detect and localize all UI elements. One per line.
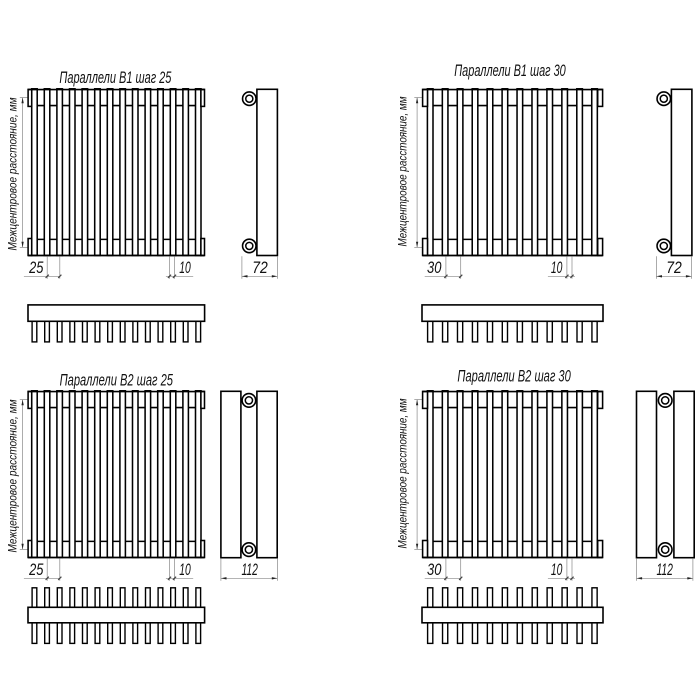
svg-text:25: 25 xyxy=(28,258,43,277)
svg-text:Параллели В1 шаг 30: Параллели В1 шаг 30 xyxy=(454,61,566,80)
svg-text:112: 112 xyxy=(241,560,258,579)
svg-text:10: 10 xyxy=(551,258,563,277)
svg-text:25: 25 xyxy=(28,560,43,579)
svg-text:10: 10 xyxy=(179,258,191,277)
svg-text:72: 72 xyxy=(252,258,268,277)
svg-text:Межцентровое расстояние, мм: Межцентровое расстояние, мм xyxy=(8,97,20,250)
svg-text:30: 30 xyxy=(427,258,442,277)
svg-text:10: 10 xyxy=(179,560,191,579)
svg-text:Параллели В2 шаг 25: Параллели В2 шаг 25 xyxy=(60,371,174,390)
svg-text:Межцентровое расстояние, мм: Межцентровое расстояние, мм xyxy=(398,398,410,548)
svg-text:Параллели В2 шаг 30: Параллели В2 шаг 30 xyxy=(457,367,571,386)
svg-text:112: 112 xyxy=(656,560,673,579)
svg-text:Параллели В1 шаг 25: Параллели В1 шаг 25 xyxy=(59,68,171,87)
svg-text:10: 10 xyxy=(551,560,563,579)
svg-text:30: 30 xyxy=(427,560,442,579)
svg-text:72: 72 xyxy=(666,258,682,277)
svg-text:Межцентровое расстояние, мм: Межцентровое расстояние, мм xyxy=(8,399,20,552)
svg-text:Межцентровое расстояние, мм: Межцентровое расстояние, мм xyxy=(398,96,410,246)
